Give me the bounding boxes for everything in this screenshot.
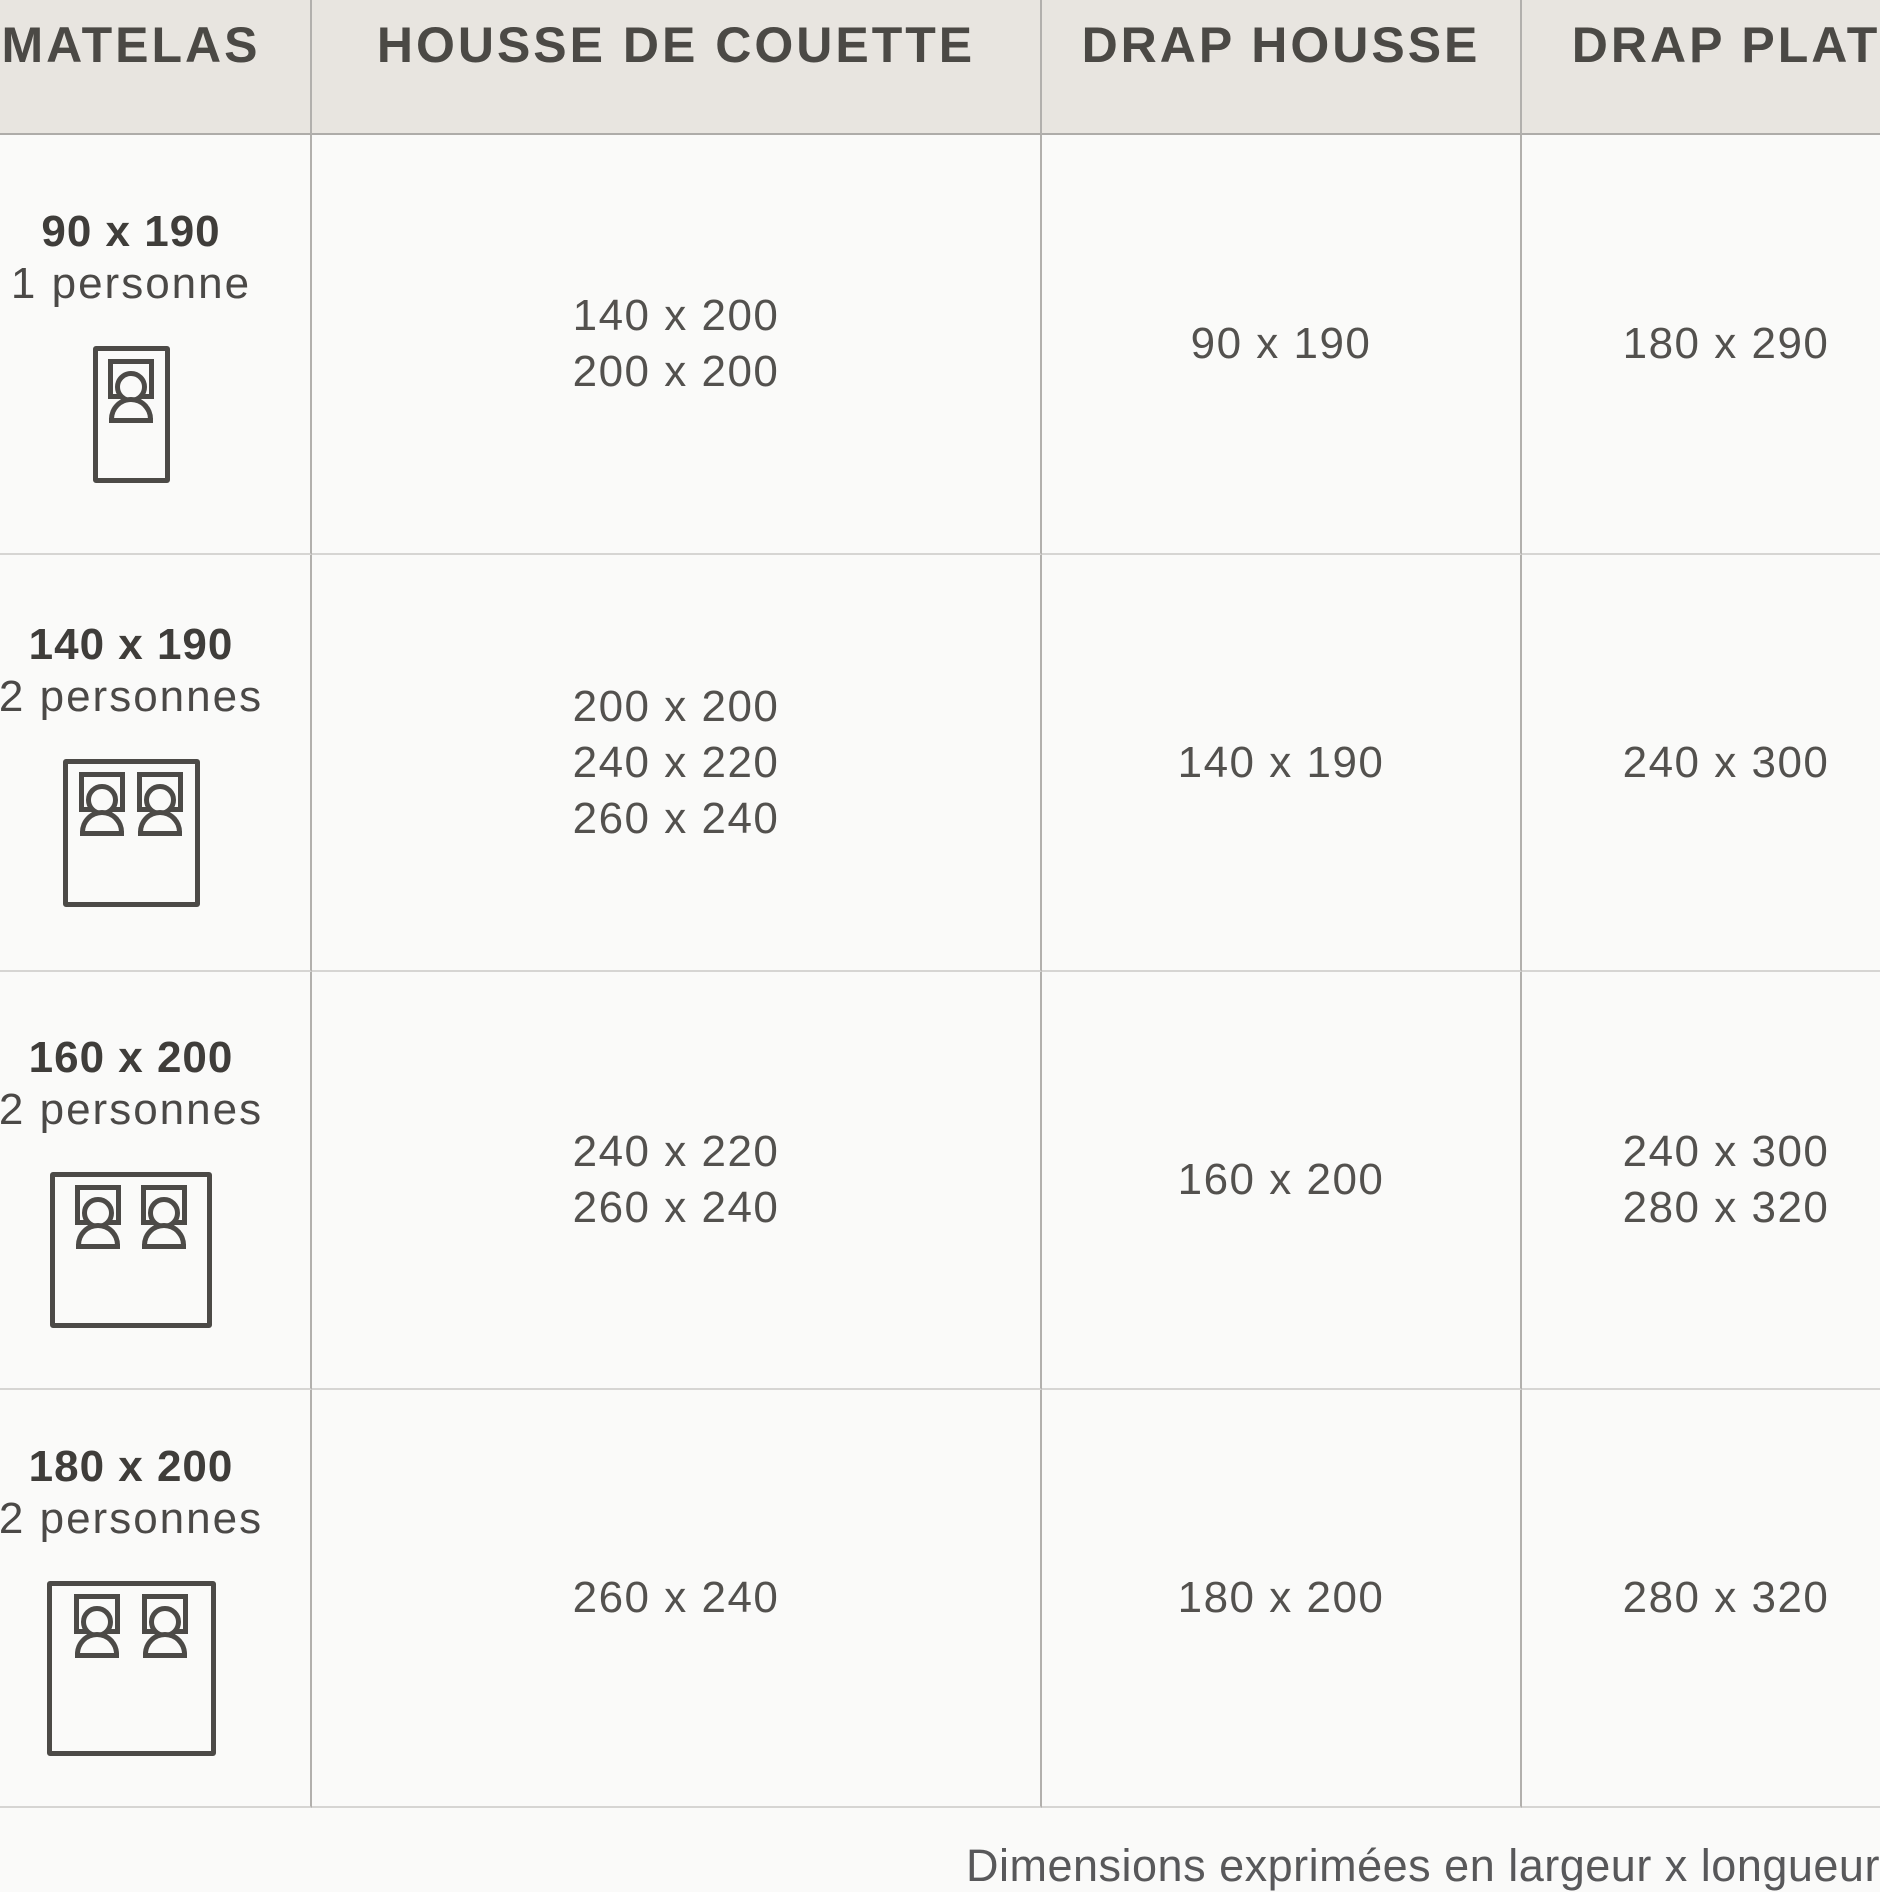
single-bed-icon	[93, 346, 170, 483]
drap-housse-cell-row4: 180 x 200	[1042, 1390, 1522, 1808]
person-figure	[75, 1185, 121, 1251]
mattress-persons: 2 personnes	[0, 1084, 263, 1136]
column-header-drap-plat: DRAP PLAT	[1522, 0, 1880, 135]
drap-plat-cell-row2: 240 x 300	[1522, 555, 1880, 972]
mattress-size: 90 x 190	[41, 206, 220, 258]
size-value: 140 x 200	[573, 288, 780, 344]
size-value: 90 x 190	[1191, 316, 1372, 372]
size-value: 160 x 200	[1178, 1152, 1385, 1208]
mattress-persons: 1 personne	[11, 258, 251, 310]
drap-housse-cell-row2: 140 x 190	[1042, 555, 1522, 972]
person-shoulders	[109, 397, 153, 423]
column-header-housse-de-couette: HOUSSE DE COUETTE	[312, 0, 1042, 135]
size-value: 280 x 320	[1623, 1570, 1830, 1626]
column-header-drap-housse: DRAP HOUSSE	[1042, 0, 1522, 135]
person-shoulders	[142, 1223, 186, 1249]
size-value: 200 x 200	[573, 344, 780, 400]
person-shoulders	[138, 810, 182, 836]
person-figure	[79, 772, 125, 838]
person-figure	[74, 1594, 120, 1660]
drap-plat-cell-row1: 180 x 290	[1522, 135, 1880, 555]
footer-note: Dimensions exprimées en largeur x longue…	[966, 1840, 1880, 1892]
mattress-persons: 2 personnes	[0, 671, 263, 723]
size-value: 240 x 220	[573, 1124, 780, 1180]
mattress-persons: 2 personnes	[0, 1493, 263, 1545]
drap-plat-cell-row3: 240 x 300 280 x 320	[1522, 972, 1880, 1390]
person-shoulders	[143, 1632, 187, 1658]
size-value: 260 x 240	[573, 1570, 780, 1626]
housse-de-couette-cell-row1: 140 x 200 200 x 200	[312, 135, 1042, 555]
person-shoulders	[80, 810, 124, 836]
person-figure	[137, 772, 183, 838]
matelas-cell-row2: 140 x 190 2 personnes	[0, 555, 312, 972]
column-header-matelas: MATELAS	[0, 0, 312, 135]
drap-housse-cell-row3: 160 x 200	[1042, 972, 1522, 1390]
housse-de-couette-cell-row3: 240 x 220 260 x 240	[312, 972, 1042, 1390]
size-value: 280 x 320	[1623, 1180, 1830, 1236]
double-bed-icon	[63, 759, 200, 907]
mattress-size: 140 x 190	[29, 619, 234, 671]
bedding-size-table: MATELAS HOUSSE DE COUETTE DRAP HOUSSE DR…	[0, 0, 1880, 1808]
mattress-size: 160 x 200	[29, 1032, 234, 1084]
person-figure	[142, 1594, 188, 1660]
size-value: 240 x 220	[573, 735, 780, 791]
double-bed-icon	[47, 1581, 216, 1756]
person-figure	[141, 1185, 187, 1251]
size-value: 260 x 240	[573, 791, 780, 847]
person-shoulders	[76, 1223, 120, 1249]
size-value: 260 x 240	[573, 1180, 780, 1236]
size-value: 240 x 300	[1623, 1124, 1830, 1180]
housse-de-couette-cell-row4: 260 x 240	[312, 1390, 1042, 1808]
matelas-cell-row1: 90 x 190 1 personne	[0, 135, 312, 555]
size-value: 200 x 200	[573, 679, 780, 735]
housse-de-couette-cell-row2: 200 x 200 240 x 220 260 x 240	[312, 555, 1042, 972]
size-value: 180 x 290	[1623, 316, 1830, 372]
matelas-cell-row4: 180 x 200 2 personnes	[0, 1390, 312, 1808]
matelas-cell-row3: 160 x 200 2 personnes	[0, 972, 312, 1390]
size-value: 180 x 200	[1178, 1570, 1385, 1626]
size-value: 240 x 300	[1623, 735, 1830, 791]
person-shoulders	[75, 1632, 119, 1658]
drap-plat-cell-row4: 280 x 320	[1522, 1390, 1880, 1808]
double-bed-icon	[50, 1172, 212, 1328]
person-figure	[108, 359, 154, 425]
size-value: 140 x 190	[1178, 735, 1385, 791]
drap-housse-cell-row1: 90 x 190	[1042, 135, 1522, 555]
mattress-size: 180 x 200	[29, 1441, 234, 1493]
